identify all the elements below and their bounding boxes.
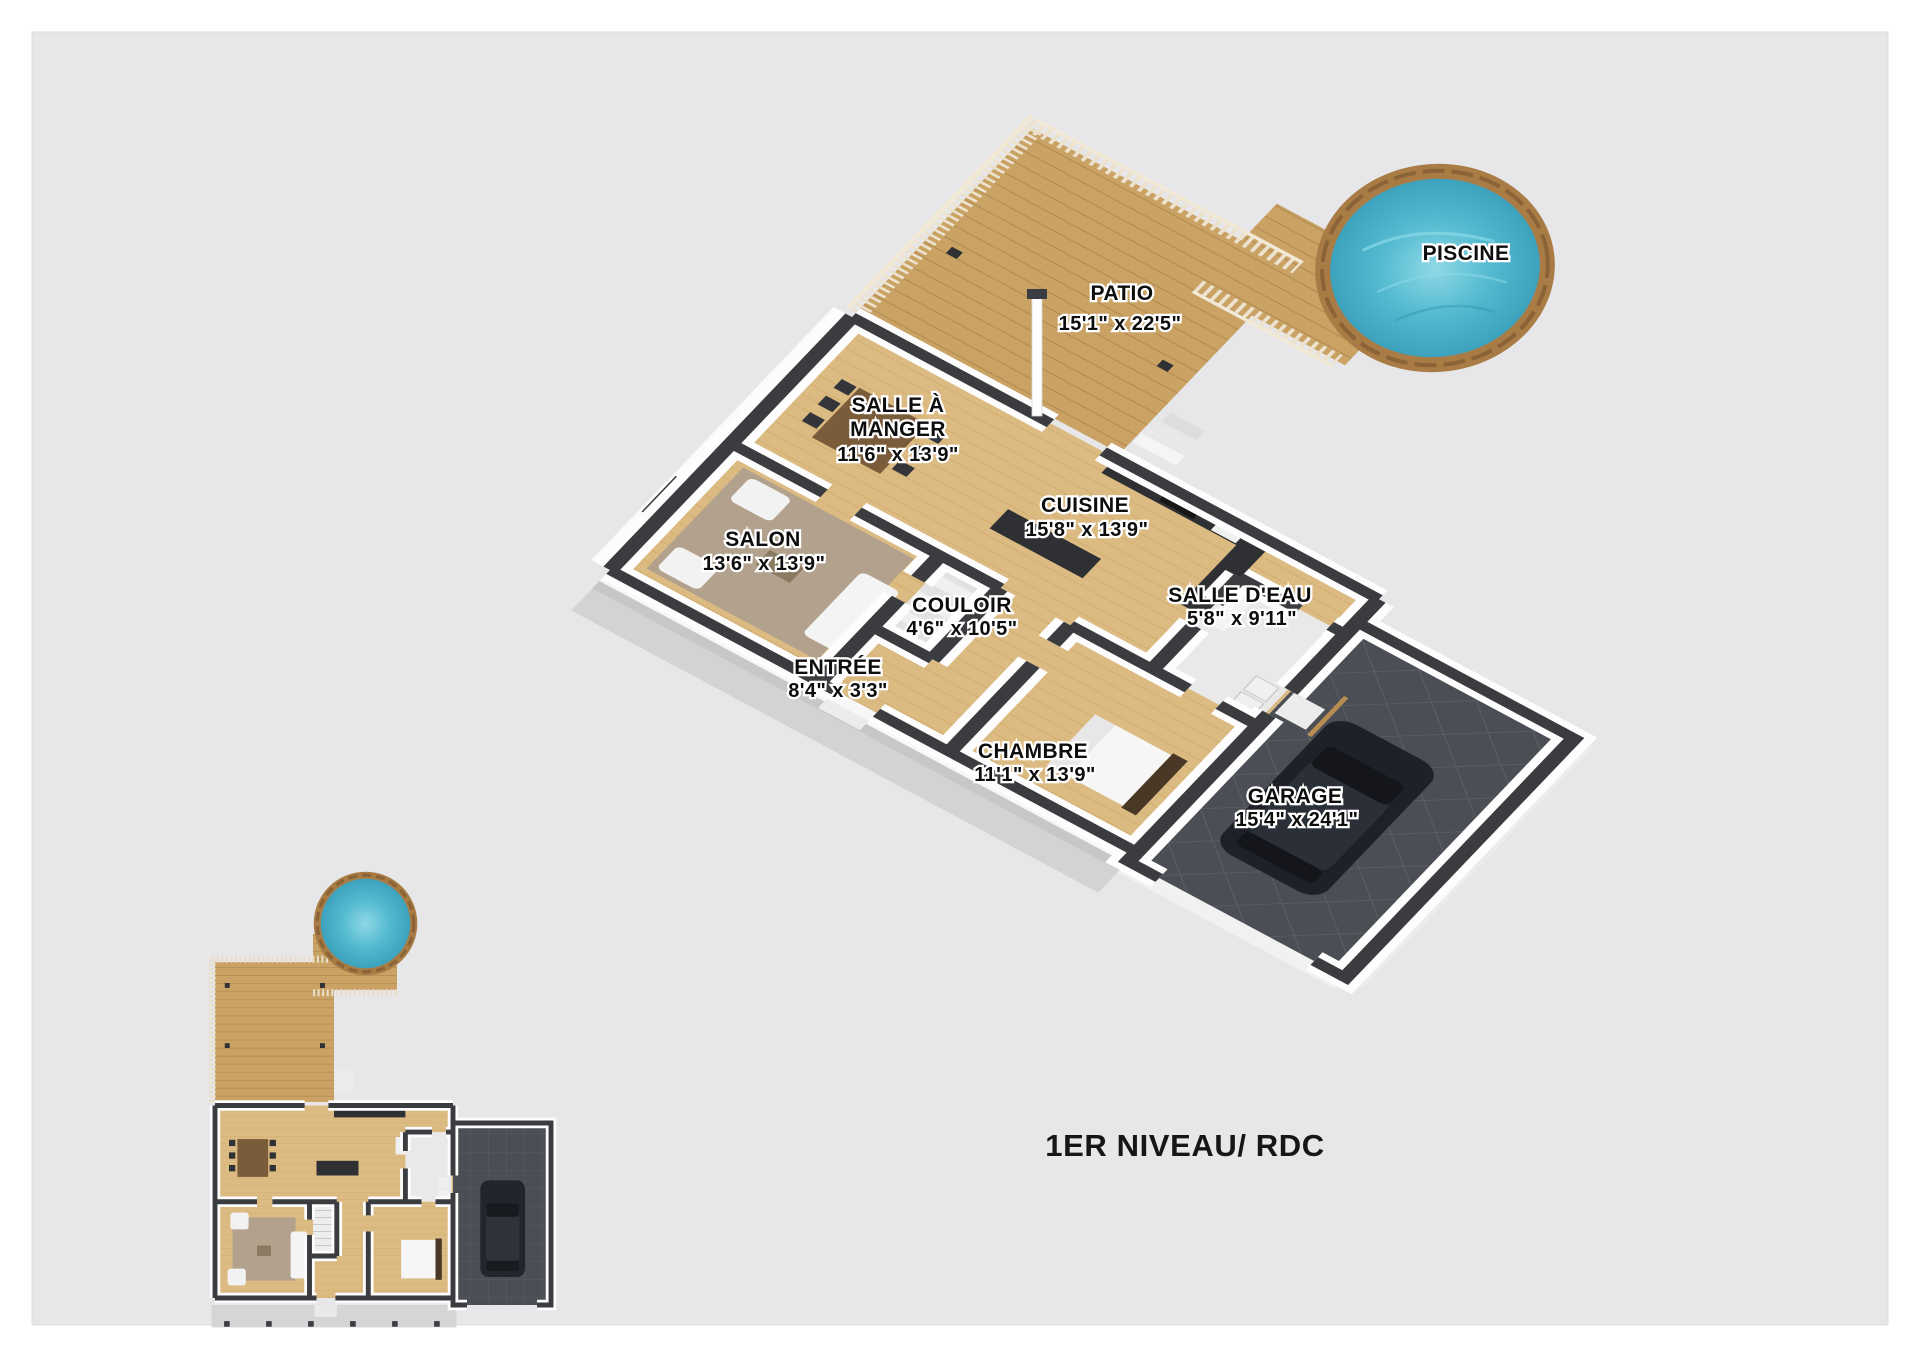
mini-chair <box>270 1165 276 1171</box>
mini-porch-post <box>350 1321 356 1327</box>
label-chambre: CHAMBRE <box>978 740 1088 763</box>
deck-post-chimney <box>1032 298 1042 416</box>
mini-deck-stairs <box>335 1069 353 1093</box>
mini-bed-headboard <box>436 1239 442 1280</box>
label-couloir: COULOIR <box>912 594 1012 617</box>
mini-deck-post <box>320 1043 325 1048</box>
label-salle-deau: SALLE D'EAU <box>1168 584 1312 607</box>
mini-coffee-table <box>257 1246 271 1257</box>
mini-dryer <box>438 1178 448 1188</box>
mini-bed <box>401 1240 435 1279</box>
mini-deck-post <box>320 983 325 988</box>
mini-chair <box>229 1165 235 1171</box>
mini-car <box>480 1180 525 1277</box>
dims-couloir: 4'6" x 10'5" <box>906 618 1017 640</box>
mini-pool-water <box>321 879 411 969</box>
mini-chair <box>270 1152 276 1158</box>
mini-chair <box>229 1152 235 1158</box>
label-piscine: PISCINE <box>1423 242 1510 265</box>
label-garage: GARAGE <box>1248 785 1343 808</box>
dims-patio: 15'1" x 22'5" <box>1059 313 1182 335</box>
mini-armchair <box>230 1213 248 1230</box>
mini-porch-post <box>266 1321 272 1327</box>
label-salle-a-manger-1: SALLE À <box>852 394 945 417</box>
label-salle-a-manger-2: MANGER <box>850 418 946 441</box>
mini-chair <box>270 1140 276 1146</box>
mini-porch-post <box>308 1321 314 1327</box>
dims-salle-deau: 5'8" x 9'11" <box>1187 608 1297 630</box>
label-salon: SALON <box>725 528 801 551</box>
mini-deck-post <box>225 1043 230 1048</box>
label-cuisine: CUISINE <box>1041 494 1129 517</box>
dims-salon: 13'6" x 13'9" <box>703 553 826 575</box>
chimney-cap <box>1027 289 1047 299</box>
mini-island <box>317 1161 359 1176</box>
mini-deck-post <box>225 983 230 988</box>
plan-title: 1ER NIVEAU/ RDC <box>1045 1128 1324 1163</box>
floor-plan-page: PISCINE PATIO 15'1" x 22'5" SALLE À MANG… <box>0 0 1920 1357</box>
mini-porch-post <box>224 1321 230 1327</box>
dims-chambre: 11'1" x 13'9" <box>974 764 1096 786</box>
mini-armchair <box>228 1269 246 1286</box>
floor-plan-canvas: PISCINE PATIO 15'1" x 22'5" SALLE À MANG… <box>0 0 1920 1357</box>
dims-cuisine: 15'8" x 13'9" <box>1026 519 1149 541</box>
mini-front-step <box>314 1305 336 1317</box>
mini-porch-post <box>392 1321 398 1327</box>
mini-porch-post <box>434 1321 440 1327</box>
dims-salle-a-manger: 11'6" x 13'9" <box>837 444 959 466</box>
mini-dining-table <box>237 1139 268 1177</box>
label-patio: PATIO <box>1090 282 1153 305</box>
label-entree: ENTRÉE <box>794 656 882 679</box>
mini-chair <box>229 1140 235 1146</box>
dims-garage: 15'4" x 24'1" <box>1236 809 1359 831</box>
dims-entree: 8'4" x 3'3" <box>788 680 888 702</box>
